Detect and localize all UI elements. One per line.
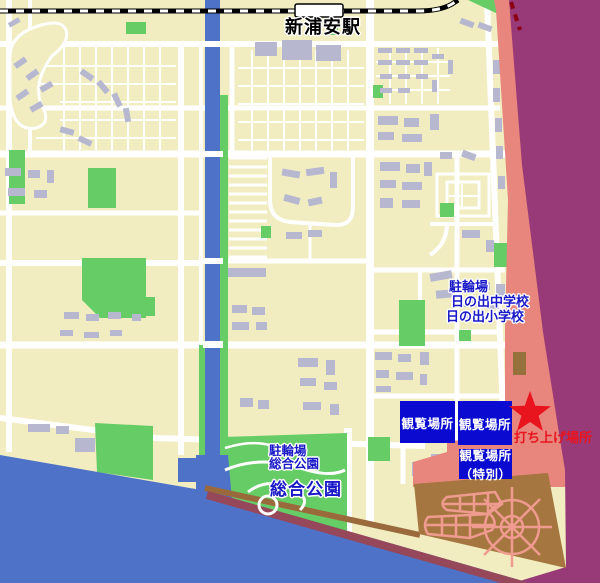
overlay-building xyxy=(513,352,526,375)
viewing-area-box-special: 観覧場所 （特別） xyxy=(459,449,512,479)
launch-site-label: 打ち上げ場所 xyxy=(514,431,592,445)
viewing-area-special-line2: （特別） xyxy=(459,464,511,483)
park-label-small: 総合公園 xyxy=(269,458,319,472)
middle-school-label: 日の出中学校 xyxy=(451,295,529,309)
viewing-area-special-line1: 観覧場所 xyxy=(459,445,511,464)
bike-parking-label-ne: 駐輪場 xyxy=(449,280,488,294)
viewing-area-box-left: 観覧場所 xyxy=(400,401,455,443)
station-label: 新浦安駅 xyxy=(285,18,361,38)
elementary-school-label: 日の出小学校 xyxy=(446,310,524,324)
station-marker xyxy=(295,4,343,17)
fireworks-venue-map: 新浦安駅 駐輪場 日の出中学校 日の出小学校 観覧場所 観覧場所 観覧場所 （特… xyxy=(0,0,600,583)
park-name-large: 総合公園 xyxy=(270,481,342,500)
